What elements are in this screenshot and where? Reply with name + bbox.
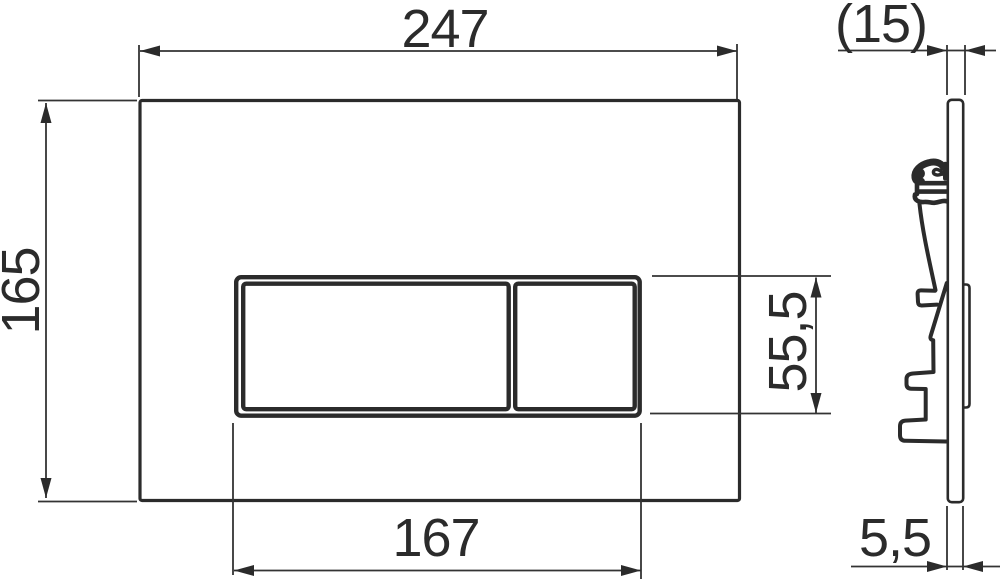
svg-text:247: 247 [401,0,488,59]
svg-text:167: 167 [392,508,479,568]
svg-text:(15): (15) [835,0,927,54]
svg-text:165: 165 [0,247,51,334]
svg-text:55,5: 55,5 [758,291,818,392]
svg-text:5,5: 5,5 [859,508,931,568]
